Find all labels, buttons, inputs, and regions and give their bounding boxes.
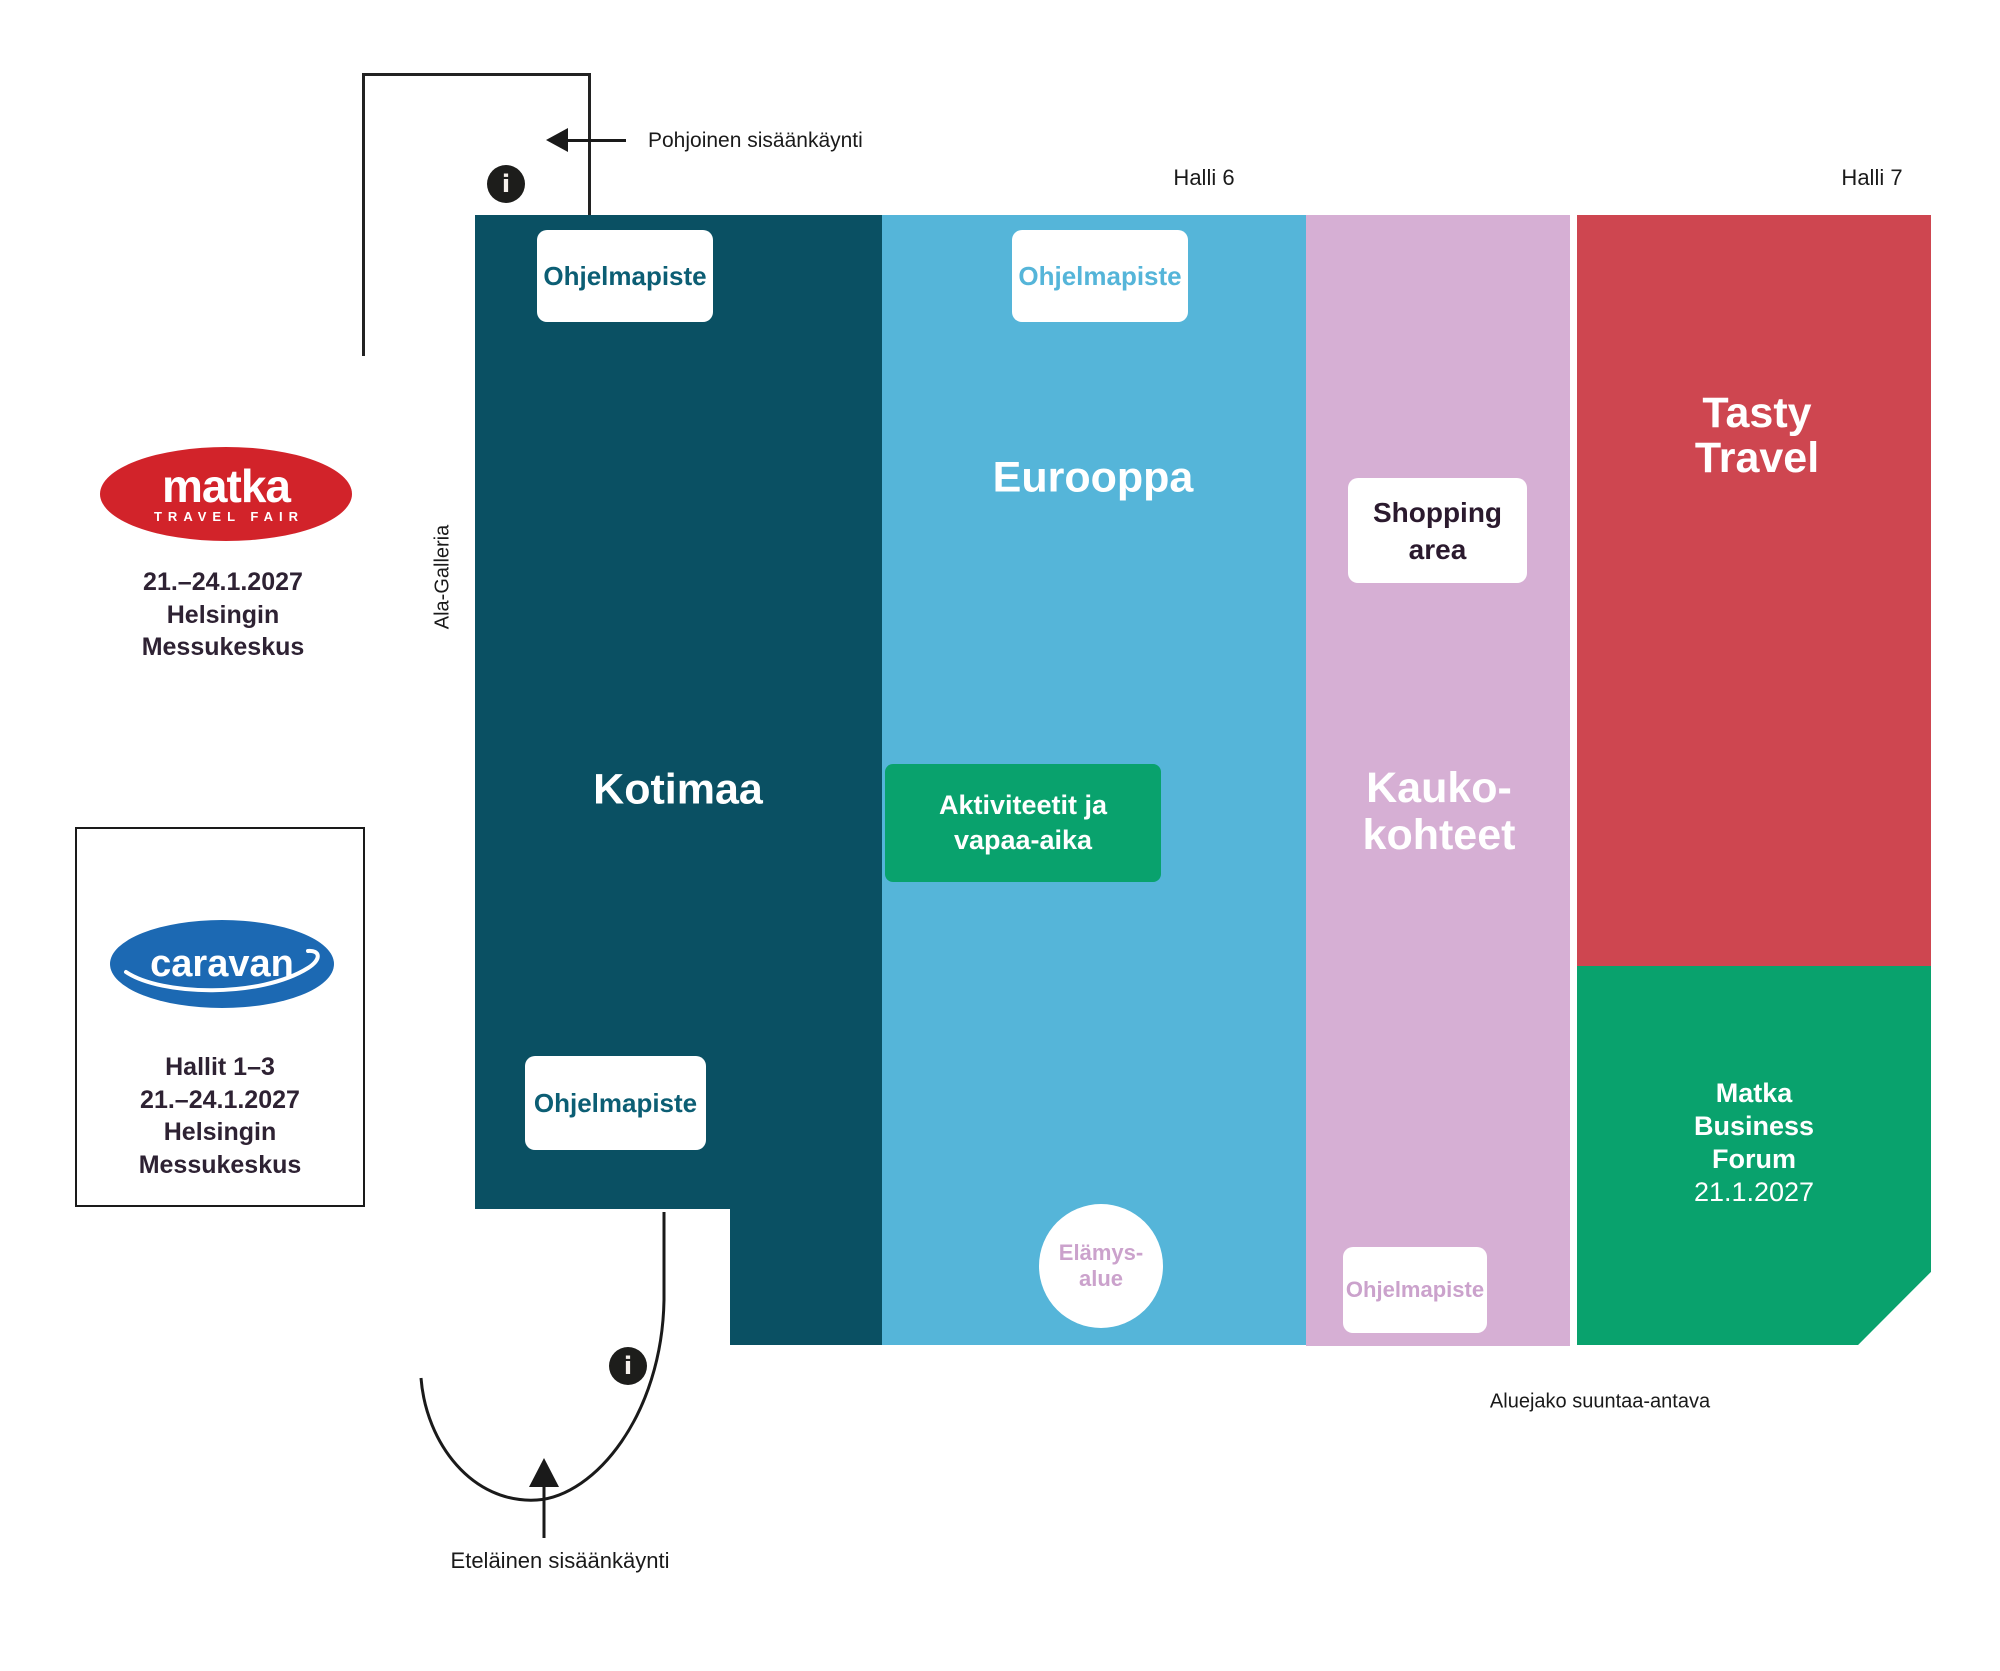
caravan-venue: Messukeskus	[77, 1149, 363, 1182]
matka-business-forum-title: Matka Business Forum 21.1.2027	[1694, 1077, 1814, 1209]
elamysalue-circle: Elämys- alue	[1039, 1204, 1163, 1328]
south-entrance-label: Eteläinen sisäänkäynti	[451, 1548, 670, 1574]
forum-title-line3: Forum	[1694, 1143, 1814, 1176]
matka-logo-text: matka	[162, 464, 290, 508]
ohjelmapiste-box-eurooppa: Ohjelmapiste	[1012, 230, 1188, 322]
caravan-card: caravan Hallit 1–3 21.–24.1.2027 Helsing…	[75, 827, 365, 1207]
aktiviteetit-line2: vapaa-aika	[939, 823, 1107, 858]
caravan-swoosh-icon	[110, 920, 334, 1008]
kaukokohteet-title: Kauko- kohteet	[1363, 765, 1516, 859]
north-entrance-label: Pohjoinen sisäänkäynti	[648, 129, 863, 153]
caravan-halls: Hallit 1–3	[77, 1051, 363, 1084]
ohjelmapiste-box-kotimaa-top: Ohjelmapiste	[537, 230, 713, 322]
ohjelmapiste-label: Ohjelmapiste	[543, 261, 706, 292]
north-outline-right	[588, 73, 591, 216]
floor-plan: Pohjoinen sisäänkäynti i Halli 6 Halli 7…	[0, 0, 2000, 1671]
shopping-area-box: Shopping area	[1348, 478, 1527, 583]
info-icon: i	[609, 1347, 647, 1385]
north-arrow-icon	[546, 128, 568, 152]
caravan-event-info: Hallit 1–3 21.–24.1.2027 Helsingin Messu…	[77, 1051, 363, 1181]
matka-logo: matka TRAVEL FAIR	[100, 447, 352, 541]
hall-7-label: Halli 7	[1841, 165, 1902, 191]
info-icon: i	[487, 165, 525, 203]
shopping-area-line2: area	[1373, 531, 1502, 568]
matka-venue: Messukeskus	[88, 631, 358, 664]
hall-6-label: Halli 6	[1173, 165, 1234, 191]
kotimaa-title: Kotimaa	[593, 766, 763, 815]
caravan-logo: caravan	[110, 920, 334, 1008]
matka-city: Helsingin	[88, 599, 358, 632]
matka-logo-tagline: TRAVEL FAIR	[148, 509, 304, 524]
ohjelmapiste-label: Ohjelmapiste	[1018, 261, 1181, 292]
ala-galleria-label: Ala-Galleria	[432, 525, 455, 629]
forum-title-line2: Business	[1694, 1110, 1814, 1143]
tasty-travel-title-line1: Tasty	[1695, 391, 1819, 436]
ohjelmapiste-box-kaukokohteet: Ohjelmapiste	[1343, 1247, 1487, 1333]
south-arrow-icon	[529, 1458, 559, 1487]
north-arrow-shaft	[568, 139, 626, 142]
north-outline-left	[362, 73, 365, 356]
eurooppa-title: Eurooppa	[993, 454, 1194, 503]
forum-title-line1: Matka	[1694, 1077, 1814, 1110]
elamysalue-line1: Elämys-	[1059, 1240, 1143, 1266]
north-outline-top	[362, 73, 591, 76]
footnote: Aluejako suuntaa-antava	[1490, 1391, 1710, 1414]
tasty-travel-title-line2: Travel	[1695, 436, 1819, 481]
kaukokohteet-title-line2: kohteet	[1363, 812, 1516, 859]
aktiviteetit-box: Aktiviteetit ja vapaa-aika	[885, 764, 1161, 882]
ohjelmapiste-box-kotimaa-bottom: Ohjelmapiste	[525, 1056, 706, 1150]
region-tasty-travel	[1577, 215, 1931, 966]
shopping-area-line1: Shopping	[1373, 494, 1502, 531]
caravan-dates: 21.–24.1.2027	[77, 1084, 363, 1117]
tasty-travel-title: Tasty Travel	[1695, 391, 1819, 481]
matka-event-info: 21.–24.1.2027 Helsingin Messukeskus	[88, 566, 358, 664]
ohjelmapiste-label: Ohjelmapiste	[1346, 1277, 1484, 1303]
aktiviteetit-line1: Aktiviteetit ja	[939, 788, 1107, 823]
elamysalue-line2: alue	[1059, 1266, 1143, 1292]
forum-date: 21.1.2027	[1694, 1176, 1814, 1209]
ohjelmapiste-label: Ohjelmapiste	[534, 1088, 697, 1119]
kaukokohteet-title-line1: Kauko-	[1363, 765, 1516, 812]
matka-dates: 21.–24.1.2027	[88, 566, 358, 599]
caravan-city: Helsingin	[77, 1116, 363, 1149]
